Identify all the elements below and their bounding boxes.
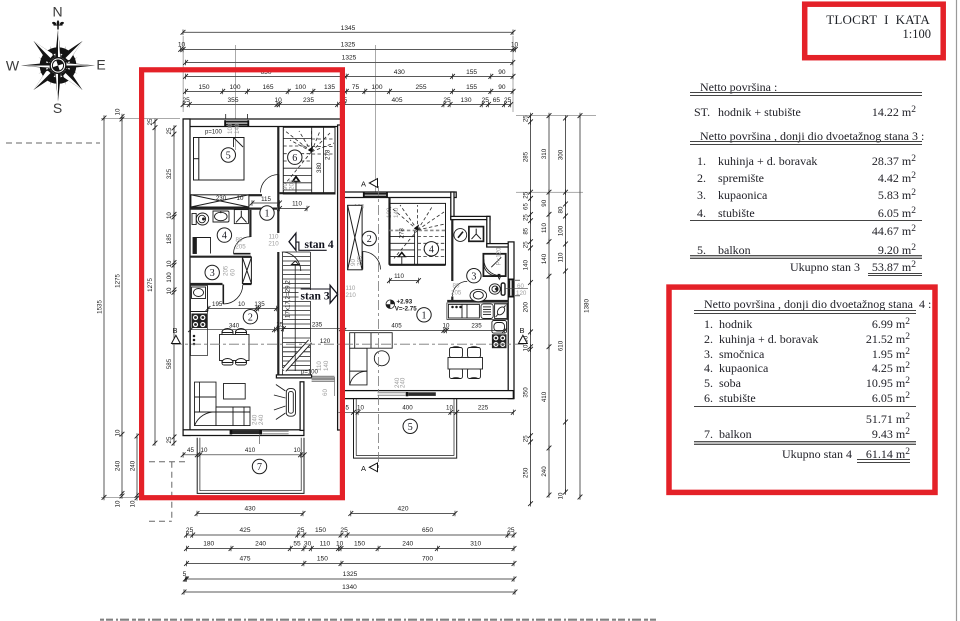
svg-text:205: 205 <box>451 289 462 296</box>
svg-text:10: 10 <box>275 97 283 104</box>
svg-text:25: 25 <box>186 527 194 534</box>
svg-text:10: 10 <box>336 541 344 548</box>
svg-text:10: 10 <box>294 447 301 454</box>
svg-text:25: 25 <box>166 127 173 134</box>
svg-text:140: 140 <box>523 259 530 270</box>
svg-text:240: 240 <box>402 541 413 548</box>
svg-text:205: 205 <box>223 265 230 276</box>
svg-text:p=100: p=100 <box>301 370 319 376</box>
svg-text:165: 165 <box>262 84 273 91</box>
svg-text:205: 205 <box>235 244 246 251</box>
svg-text:1535: 1535 <box>97 300 104 314</box>
svg-text:100: 100 <box>295 84 306 91</box>
svg-text:210: 210 <box>346 292 357 299</box>
svg-text:310: 310 <box>541 148 548 159</box>
svg-text:25: 25 <box>504 97 512 104</box>
svg-text:285: 285 <box>523 151 530 162</box>
svg-text:A: A <box>361 464 366 473</box>
svg-text:1380: 1380 <box>584 299 591 313</box>
svg-text:325: 325 <box>166 168 173 179</box>
svg-text:10: 10 <box>115 429 122 436</box>
svg-text:80: 80 <box>453 282 460 289</box>
svg-text:25: 25 <box>523 191 530 198</box>
svg-text:10: 10 <box>166 212 173 219</box>
svg-text:135: 135 <box>324 84 335 91</box>
svg-text:100: 100 <box>558 225 565 236</box>
svg-text:25: 25 <box>523 435 530 442</box>
svg-text:25: 25 <box>523 214 530 221</box>
svg-text:110: 110 <box>320 541 331 548</box>
svg-text:1275: 1275 <box>115 274 122 288</box>
svg-text:1345: 1345 <box>341 25 356 32</box>
svg-text:430: 430 <box>244 506 255 513</box>
svg-text:150: 150 <box>354 541 365 548</box>
svg-text:210: 210 <box>268 241 279 248</box>
svg-text:235: 235 <box>312 322 323 329</box>
svg-text:278: 278 <box>399 228 406 239</box>
svg-text:5: 5 <box>408 422 413 433</box>
svg-text:10: 10 <box>178 42 186 49</box>
svg-text:400: 400 <box>402 405 413 412</box>
svg-text:10: 10 <box>115 500 122 507</box>
svg-text:150: 150 <box>317 556 328 563</box>
svg-text:4: 4 <box>429 244 434 255</box>
svg-text:45: 45 <box>187 447 194 454</box>
svg-text:S: S <box>53 100 62 116</box>
svg-text:85: 85 <box>523 227 530 234</box>
svg-text:stan 4: stan 4 <box>305 239 334 251</box>
svg-text:1325: 1325 <box>341 42 356 49</box>
svg-text:1325: 1325 <box>342 55 357 62</box>
svg-text:155: 155 <box>466 69 477 76</box>
svg-text:120: 120 <box>516 290 527 297</box>
svg-text:4: 4 <box>222 231 227 242</box>
svg-text:140: 140 <box>234 123 241 134</box>
svg-text:P=120: P=120 <box>496 247 503 266</box>
svg-text:5: 5 <box>183 571 187 578</box>
svg-text:475: 475 <box>239 556 250 563</box>
svg-text:700: 700 <box>422 556 433 563</box>
svg-text:65: 65 <box>523 203 530 210</box>
svg-text:425: 425 <box>239 527 250 534</box>
svg-text:240: 240 <box>541 466 548 477</box>
svg-text:3: 3 <box>471 271 476 282</box>
svg-text:stan 3: stan 3 <box>301 291 330 303</box>
svg-text:200: 200 <box>523 301 530 312</box>
svg-text:180: 180 <box>203 541 214 548</box>
svg-text:110: 110 <box>394 273 404 280</box>
svg-text:60: 60 <box>322 389 329 396</box>
svg-text:110: 110 <box>541 223 548 233</box>
svg-text:100: 100 <box>227 123 234 134</box>
svg-text:380: 380 <box>316 162 323 173</box>
svg-text:10: 10 <box>237 195 244 202</box>
svg-text:235: 235 <box>471 323 482 330</box>
svg-text:110: 110 <box>292 201 302 208</box>
svg-text:240: 240 <box>115 460 122 471</box>
svg-text:10: 10 <box>558 492 565 499</box>
svg-text:80: 80 <box>236 237 243 244</box>
svg-text:60: 60 <box>230 269 237 276</box>
svg-text:110: 110 <box>269 234 279 241</box>
svg-text:150: 150 <box>315 527 326 534</box>
svg-text:10: 10 <box>511 42 519 49</box>
svg-text:N: N <box>52 4 62 20</box>
svg-text:255: 255 <box>415 84 426 91</box>
svg-text:25: 25 <box>507 527 515 534</box>
svg-text:3: 3 <box>210 268 215 279</box>
svg-text:10: 10 <box>115 108 122 115</box>
svg-text:25: 25 <box>523 115 530 122</box>
svg-text:75: 75 <box>352 84 360 91</box>
svg-text:225: 225 <box>478 405 489 412</box>
svg-text:205: 205 <box>289 179 296 190</box>
svg-text:1340: 1340 <box>342 584 357 591</box>
svg-text:6: 6 <box>292 153 297 164</box>
svg-text:10: 10 <box>130 500 137 507</box>
svg-text:90: 90 <box>541 199 548 206</box>
svg-text:W: W <box>6 58 20 74</box>
svg-text:B: B <box>173 326 178 335</box>
svg-text:205: 205 <box>357 255 364 266</box>
svg-text:310: 310 <box>470 541 481 548</box>
svg-text:V=-2.75: V=-2.75 <box>395 306 417 313</box>
svg-text:1: 1 <box>265 209 270 220</box>
svg-text:17x17,2=29,2: 17x17,2=29,2 <box>285 280 292 318</box>
svg-text:1275: 1275 <box>147 278 154 292</box>
svg-text:25: 25 <box>340 527 348 534</box>
svg-text:25: 25 <box>523 241 530 248</box>
svg-text:195: 195 <box>212 301 223 308</box>
svg-text:55: 55 <box>293 541 301 548</box>
svg-text:240: 240 <box>255 541 266 548</box>
svg-text:140: 140 <box>323 360 330 371</box>
svg-text:2: 2 <box>367 234 372 245</box>
svg-text:300: 300 <box>558 149 565 160</box>
svg-text:240: 240 <box>399 377 406 388</box>
svg-text:1: 1 <box>422 310 427 321</box>
svg-text:65: 65 <box>493 97 501 104</box>
svg-text:235: 235 <box>303 97 314 104</box>
svg-text:650: 650 <box>422 527 433 534</box>
svg-text:2: 2 <box>248 312 253 323</box>
svg-text:240: 240 <box>130 460 137 471</box>
svg-text:140: 140 <box>541 253 548 264</box>
svg-text:585: 585 <box>166 358 173 369</box>
svg-text:115: 115 <box>261 196 271 203</box>
svg-text:350: 350 <box>523 387 530 398</box>
svg-text:110: 110 <box>346 285 356 292</box>
svg-text:25: 25 <box>147 118 154 125</box>
svg-text:10: 10 <box>238 301 245 308</box>
svg-text:25: 25 <box>443 97 451 104</box>
svg-text:10: 10 <box>523 344 530 351</box>
svg-text:100: 100 <box>371 84 382 91</box>
svg-text:90: 90 <box>498 84 506 91</box>
svg-text:405: 405 <box>391 97 402 104</box>
svg-text:+2.93: +2.93 <box>397 299 413 306</box>
svg-text:278: 278 <box>325 149 332 160</box>
svg-text:250: 250 <box>523 467 530 478</box>
svg-text:430: 430 <box>394 69 405 76</box>
svg-text:410: 410 <box>541 391 548 402</box>
svg-text:90: 90 <box>498 69 506 76</box>
svg-text:10: 10 <box>166 260 173 267</box>
svg-text:25: 25 <box>482 97 490 104</box>
svg-text:25: 25 <box>297 527 305 534</box>
svg-text:155: 155 <box>466 84 477 91</box>
svg-text:E: E <box>96 57 105 73</box>
svg-text:150: 150 <box>198 84 209 91</box>
svg-text:25: 25 <box>166 436 173 443</box>
svg-text:405: 405 <box>391 323 402 330</box>
svg-text:140: 140 <box>393 207 400 218</box>
svg-text:610: 610 <box>558 340 565 351</box>
svg-text:60: 60 <box>517 283 524 290</box>
svg-text:30: 30 <box>304 541 312 548</box>
svg-text:340: 340 <box>229 322 240 329</box>
svg-text:7: 7 <box>257 462 262 473</box>
svg-text:410: 410 <box>245 447 256 454</box>
svg-text:100: 100 <box>166 272 173 283</box>
svg-text:130: 130 <box>460 97 471 104</box>
svg-text:240: 240 <box>258 414 265 425</box>
svg-text:5: 5 <box>226 151 231 162</box>
svg-text:80: 80 <box>558 206 565 213</box>
svg-text:110: 110 <box>558 252 565 262</box>
svg-text:230: 230 <box>216 195 227 202</box>
svg-text:100: 100 <box>229 84 240 91</box>
svg-text:10: 10 <box>166 287 173 294</box>
svg-text:A: A <box>361 180 366 189</box>
svg-text:1325: 1325 <box>343 571 358 578</box>
svg-text:355: 355 <box>227 97 238 104</box>
svg-text:420: 420 <box>397 506 408 513</box>
svg-text:p=100: p=100 <box>205 130 223 136</box>
svg-text:25: 25 <box>183 97 191 104</box>
svg-text:185: 185 <box>166 233 173 244</box>
svg-text:B: B <box>520 326 525 335</box>
